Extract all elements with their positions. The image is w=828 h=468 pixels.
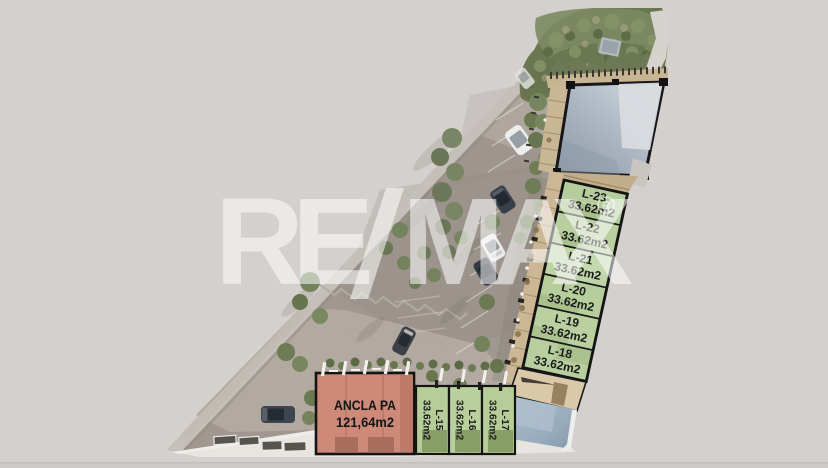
svg-text:ANCLA PA: ANCLA PA — [334, 398, 396, 413]
svg-text:L-17: L-17 — [499, 410, 510, 431]
svg-text:121,64m2: 121,64m2 — [336, 415, 394, 430]
svg-text:33.62m2: 33.62m2 — [454, 400, 465, 441]
svg-text:33.62m2: 33.62m2 — [487, 400, 498, 441]
svg-text:R: R — [215, 174, 304, 311]
svg-text:M: M — [402, 174, 504, 311]
svg-text:L-15: L-15 — [433, 410, 444, 431]
svg-text:L-16: L-16 — [466, 410, 477, 431]
svg-text:R: R — [602, 201, 611, 213]
svg-text:X: X — [551, 174, 633, 311]
svg-text:33.62m2: 33.62m2 — [421, 400, 432, 441]
